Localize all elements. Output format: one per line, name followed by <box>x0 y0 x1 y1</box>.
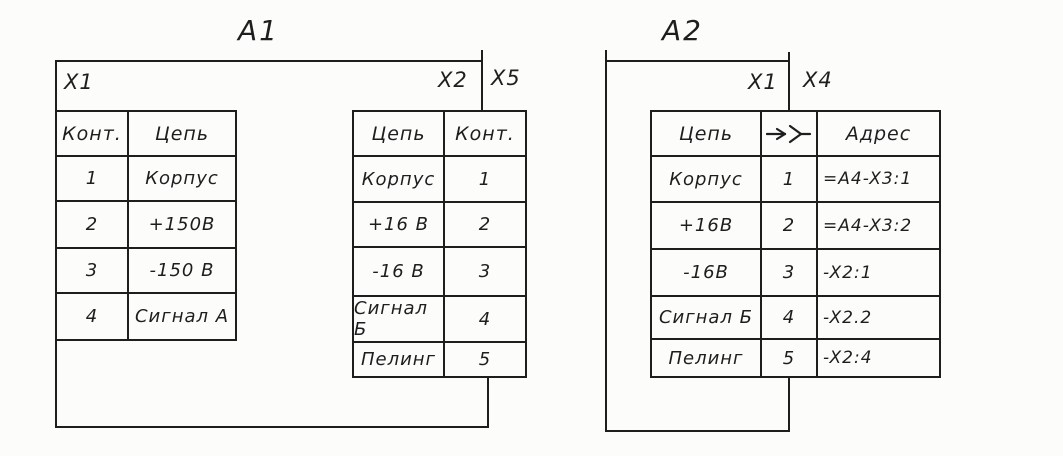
a2-row4-address: -X2.2 <box>818 297 939 340</box>
a2-row5-circuit: Пелинг <box>652 340 762 376</box>
a2-row3-address: -X2:1 <box>818 250 939 297</box>
a1-connector-x5-label: X5 <box>491 66 521 90</box>
a2-x1-x4-boundary-line <box>788 52 790 110</box>
a1-x1-row1-contact: 1 <box>57 157 129 202</box>
a1-x2-row3-circuit: -16 В <box>354 248 445 297</box>
wiring-connection-diagram: A1 X1 X2 X5 Конт. Цепь 1 Корпус 2 +150В … <box>0 0 1063 456</box>
a1-x1-pinout-table: Конт. Цепь 1 Корпус 2 +150В 3 -150 В 4 С… <box>55 110 237 341</box>
detachable-contact-icon <box>762 112 818 157</box>
a1-x2-row1-contact: 1 <box>445 157 525 203</box>
a2-row4-circuit: Сигнал Б <box>652 297 762 340</box>
a2-row5-address: -X2:4 <box>818 340 939 376</box>
a1-outline-top-line <box>55 60 483 62</box>
a2-row1-circuit: Корпус <box>652 157 762 203</box>
a2-row1-address: =A4-X3:1 <box>818 157 939 203</box>
block-a1-label: A1 <box>238 14 279 47</box>
a2-row3-contact: 3 <box>762 250 818 297</box>
a1-x2-row2-contact: 2 <box>445 203 525 248</box>
a1-x2-row3-contact: 3 <box>445 248 525 297</box>
a1-x1-header-circuit: Цепь <box>129 112 235 157</box>
a2-header-circuit: Цепь <box>652 112 762 157</box>
a1-outline-bottom-line <box>55 426 489 428</box>
a1-x2-row5-contact: 5 <box>445 343 525 376</box>
a1-x2-x5-boundary-line <box>481 50 483 112</box>
a1-x1-row4-contact: 4 <box>57 294 129 339</box>
a2-outline-right-riser-line <box>788 376 790 432</box>
a2-row4-contact: 4 <box>762 297 818 340</box>
a2-outline-left-line <box>605 60 607 432</box>
a1-x1-row1-circuit: Корпус <box>129 157 235 202</box>
a1-x2-row2-circuit: +16 В <box>354 203 445 248</box>
a2-row2-address: =A4-X3:2 <box>818 203 939 250</box>
a1-connector-x1-label: X1 <box>64 70 94 94</box>
a1-x2-row5-circuit: Пелинг <box>354 343 445 376</box>
a1-x2-header-circuit: Цепь <box>354 112 445 157</box>
a2-outline-top-line <box>605 60 790 62</box>
a1-x1-row3-circuit: -150 В <box>129 249 235 294</box>
a2-connector-x4-label: X4 <box>803 68 833 92</box>
a1-x2-pinout-table: Цепь Конт. Корпус 1 +16 В 2 -16 В 3 Сигн… <box>352 110 527 378</box>
a2-row3-circuit: -16В <box>652 250 762 297</box>
a2-row2-circuit: +16В <box>652 203 762 250</box>
a1-x1-header-contact: Конт. <box>57 112 129 157</box>
a1-x2-row4-circuit: Сигнал Б <box>354 297 445 343</box>
a1-x1-row3-contact: 3 <box>57 249 129 294</box>
a1-x1-row2-contact: 2 <box>57 202 129 249</box>
a1-x2-row1-circuit: Корпус <box>354 157 445 203</box>
a1-x1-row4-circuit: Сигнал А <box>129 294 235 339</box>
a2-x1-pinout-table: Цепь Адрес Корпус 1 =A4-X3:1 +16В 2 =A4-… <box>650 110 941 378</box>
a1-x1-row2-circuit: +150В <box>129 202 235 249</box>
a1-outline-left-upper-line <box>55 60 57 112</box>
a2-header-address: Адрес <box>818 112 939 157</box>
a1-outline-right-riser-line <box>487 376 489 428</box>
block-a2-label: A2 <box>662 14 703 47</box>
a2-connector-x1-label: X1 <box>748 70 778 94</box>
a2-row5-contact: 5 <box>762 340 818 376</box>
a1-x2-header-contact: Конт. <box>445 112 525 157</box>
a2-row1-contact: 1 <box>762 157 818 203</box>
a1-outline-left-lower-line <box>55 339 57 428</box>
a2-outline-bottom-line <box>605 430 790 432</box>
a2-row2-contact: 2 <box>762 203 818 250</box>
a1-connector-x2-label: X2 <box>438 68 468 92</box>
a1-x2-row4-contact: 4 <box>445 297 525 343</box>
